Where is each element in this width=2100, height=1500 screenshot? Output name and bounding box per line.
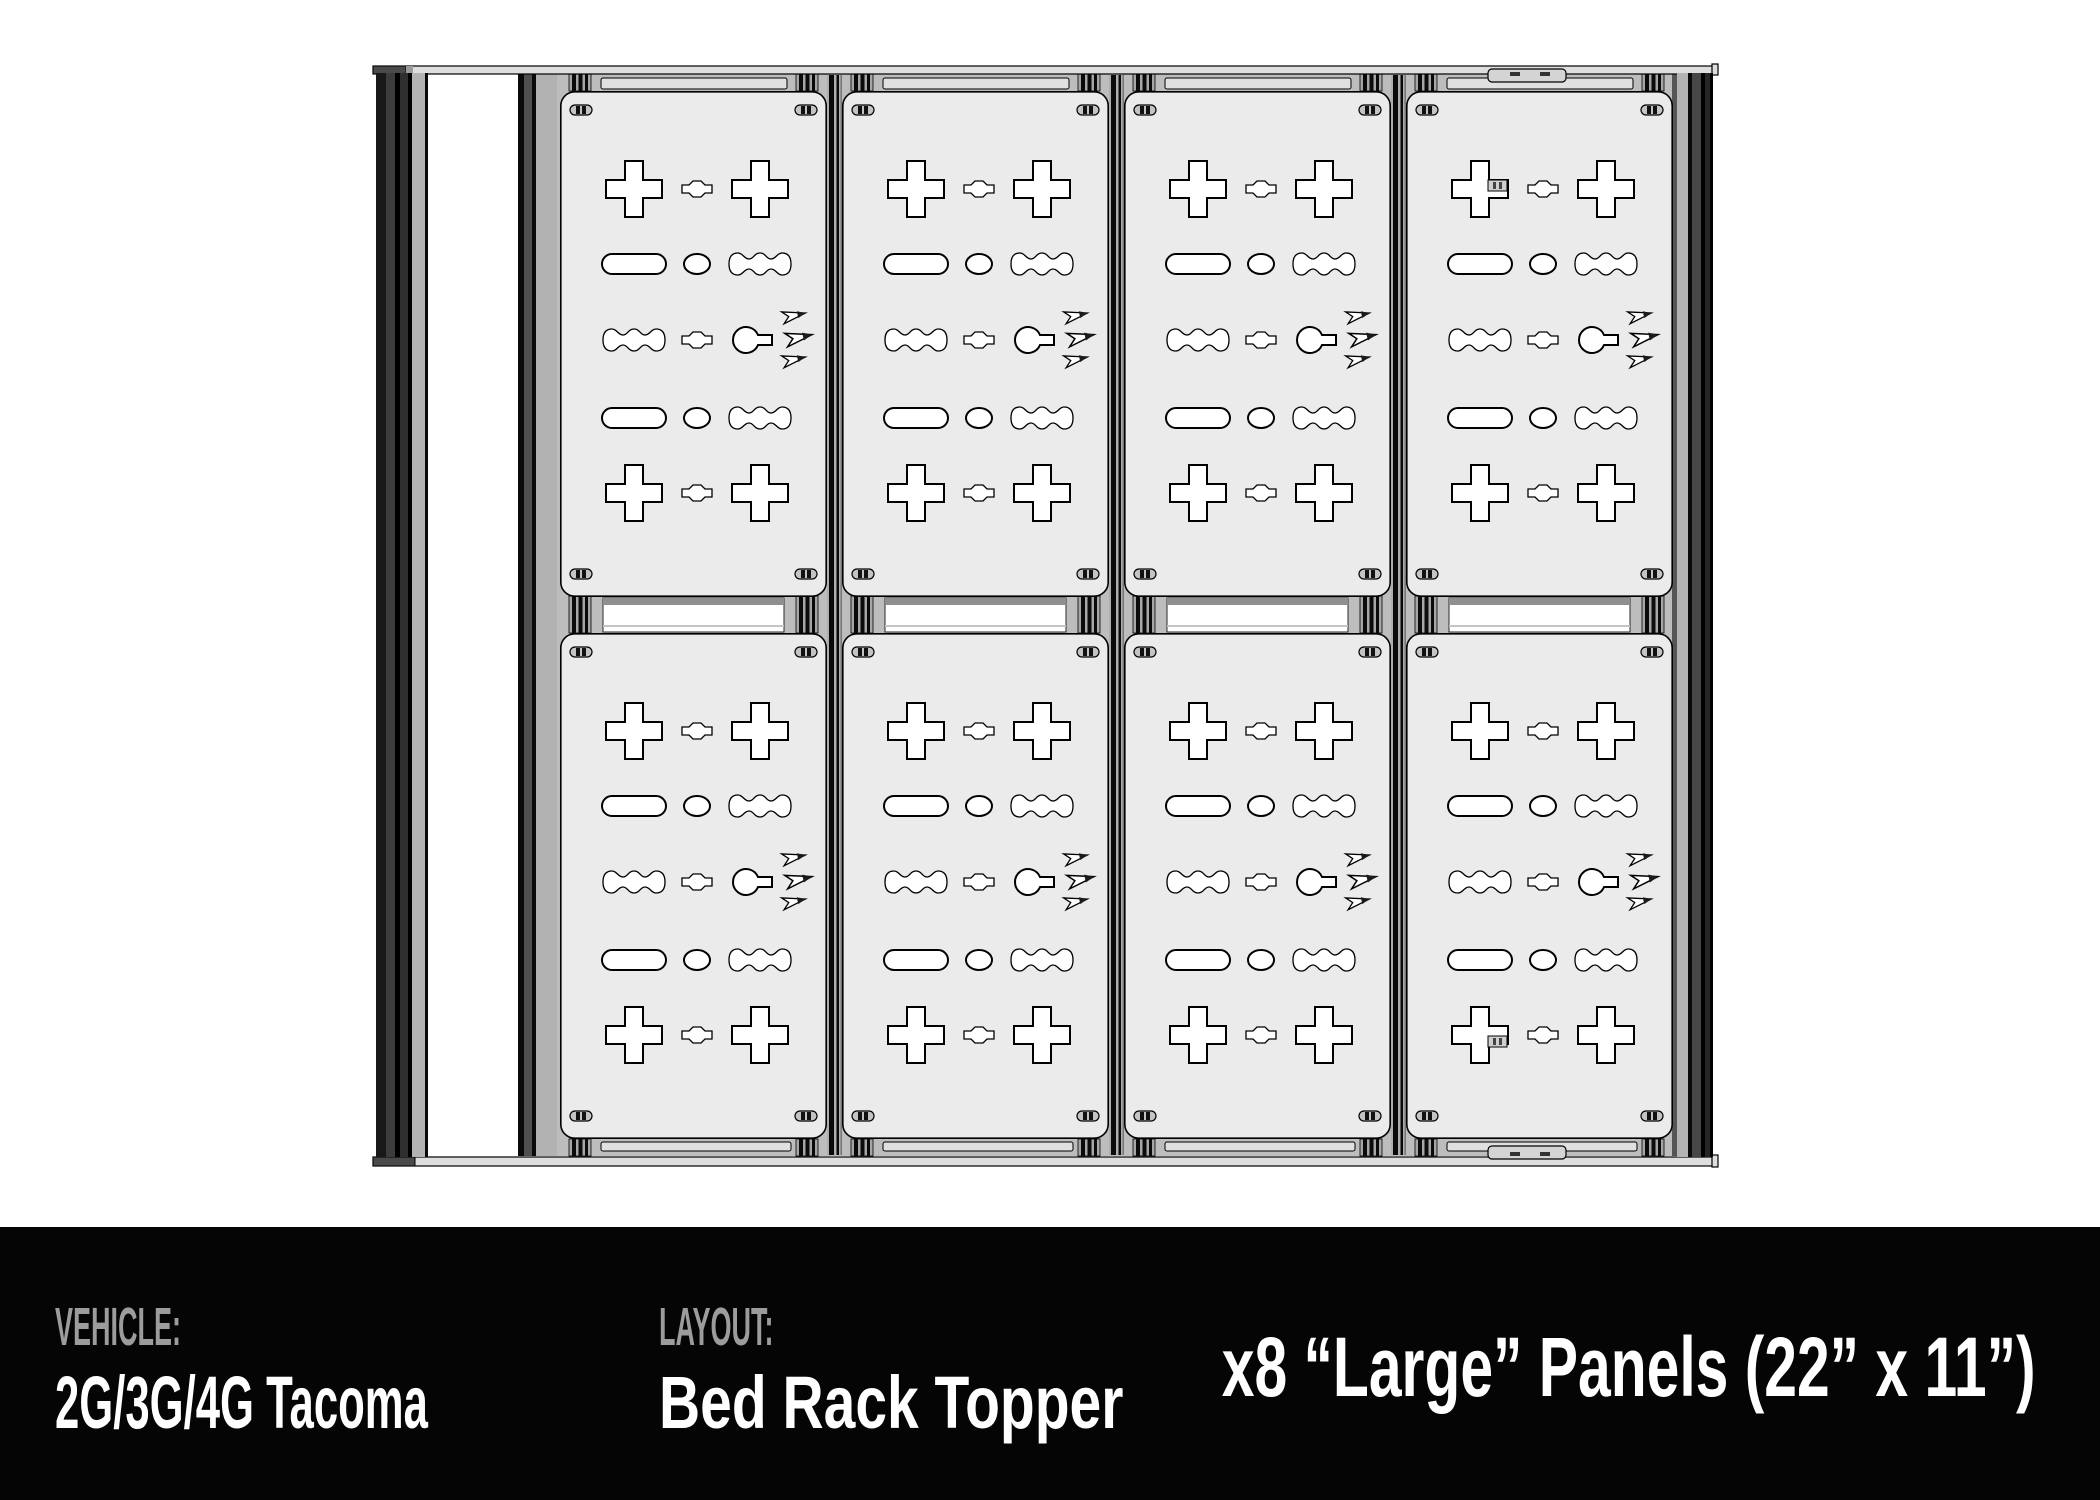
caption-bar: VEHICLE: 2G/3G/4G Tacoma LAYOUT: Bed Rac… [0,1227,2100,1500]
panel-r2c4 [1407,634,1672,1138]
panel-r2c1 [561,634,826,1138]
panel-r2c3 [1125,634,1390,1138]
vehicle-value: 2G/3G/4G Tacoma [55,1366,428,1440]
right-side-rail [1677,73,1713,1157]
left-side-rail [376,73,428,1157]
panel-r2c2 [843,634,1108,1138]
panel-r1c3 [1125,92,1390,596]
bed-rack-diagram [0,0,2100,1227]
bed-rack-topper-drawing [0,0,2100,1227]
vehicle-label: VEHICLE: [55,1300,181,1354]
panel-r1c4 [1407,92,1672,596]
panel-r1c2 [843,92,1108,596]
layout-value: Bed Rack Topper [659,1366,1123,1440]
panels-summary: x8 “Large” Panels (22” x 11”) [1222,1325,2036,1409]
panel-r1c1 [561,92,826,596]
screenshot-root: VEHICLE: 2G/3G/4G Tacoma LAYOUT: Bed Rac… [0,0,2100,1500]
layout-label: LAYOUT: [659,1300,774,1354]
